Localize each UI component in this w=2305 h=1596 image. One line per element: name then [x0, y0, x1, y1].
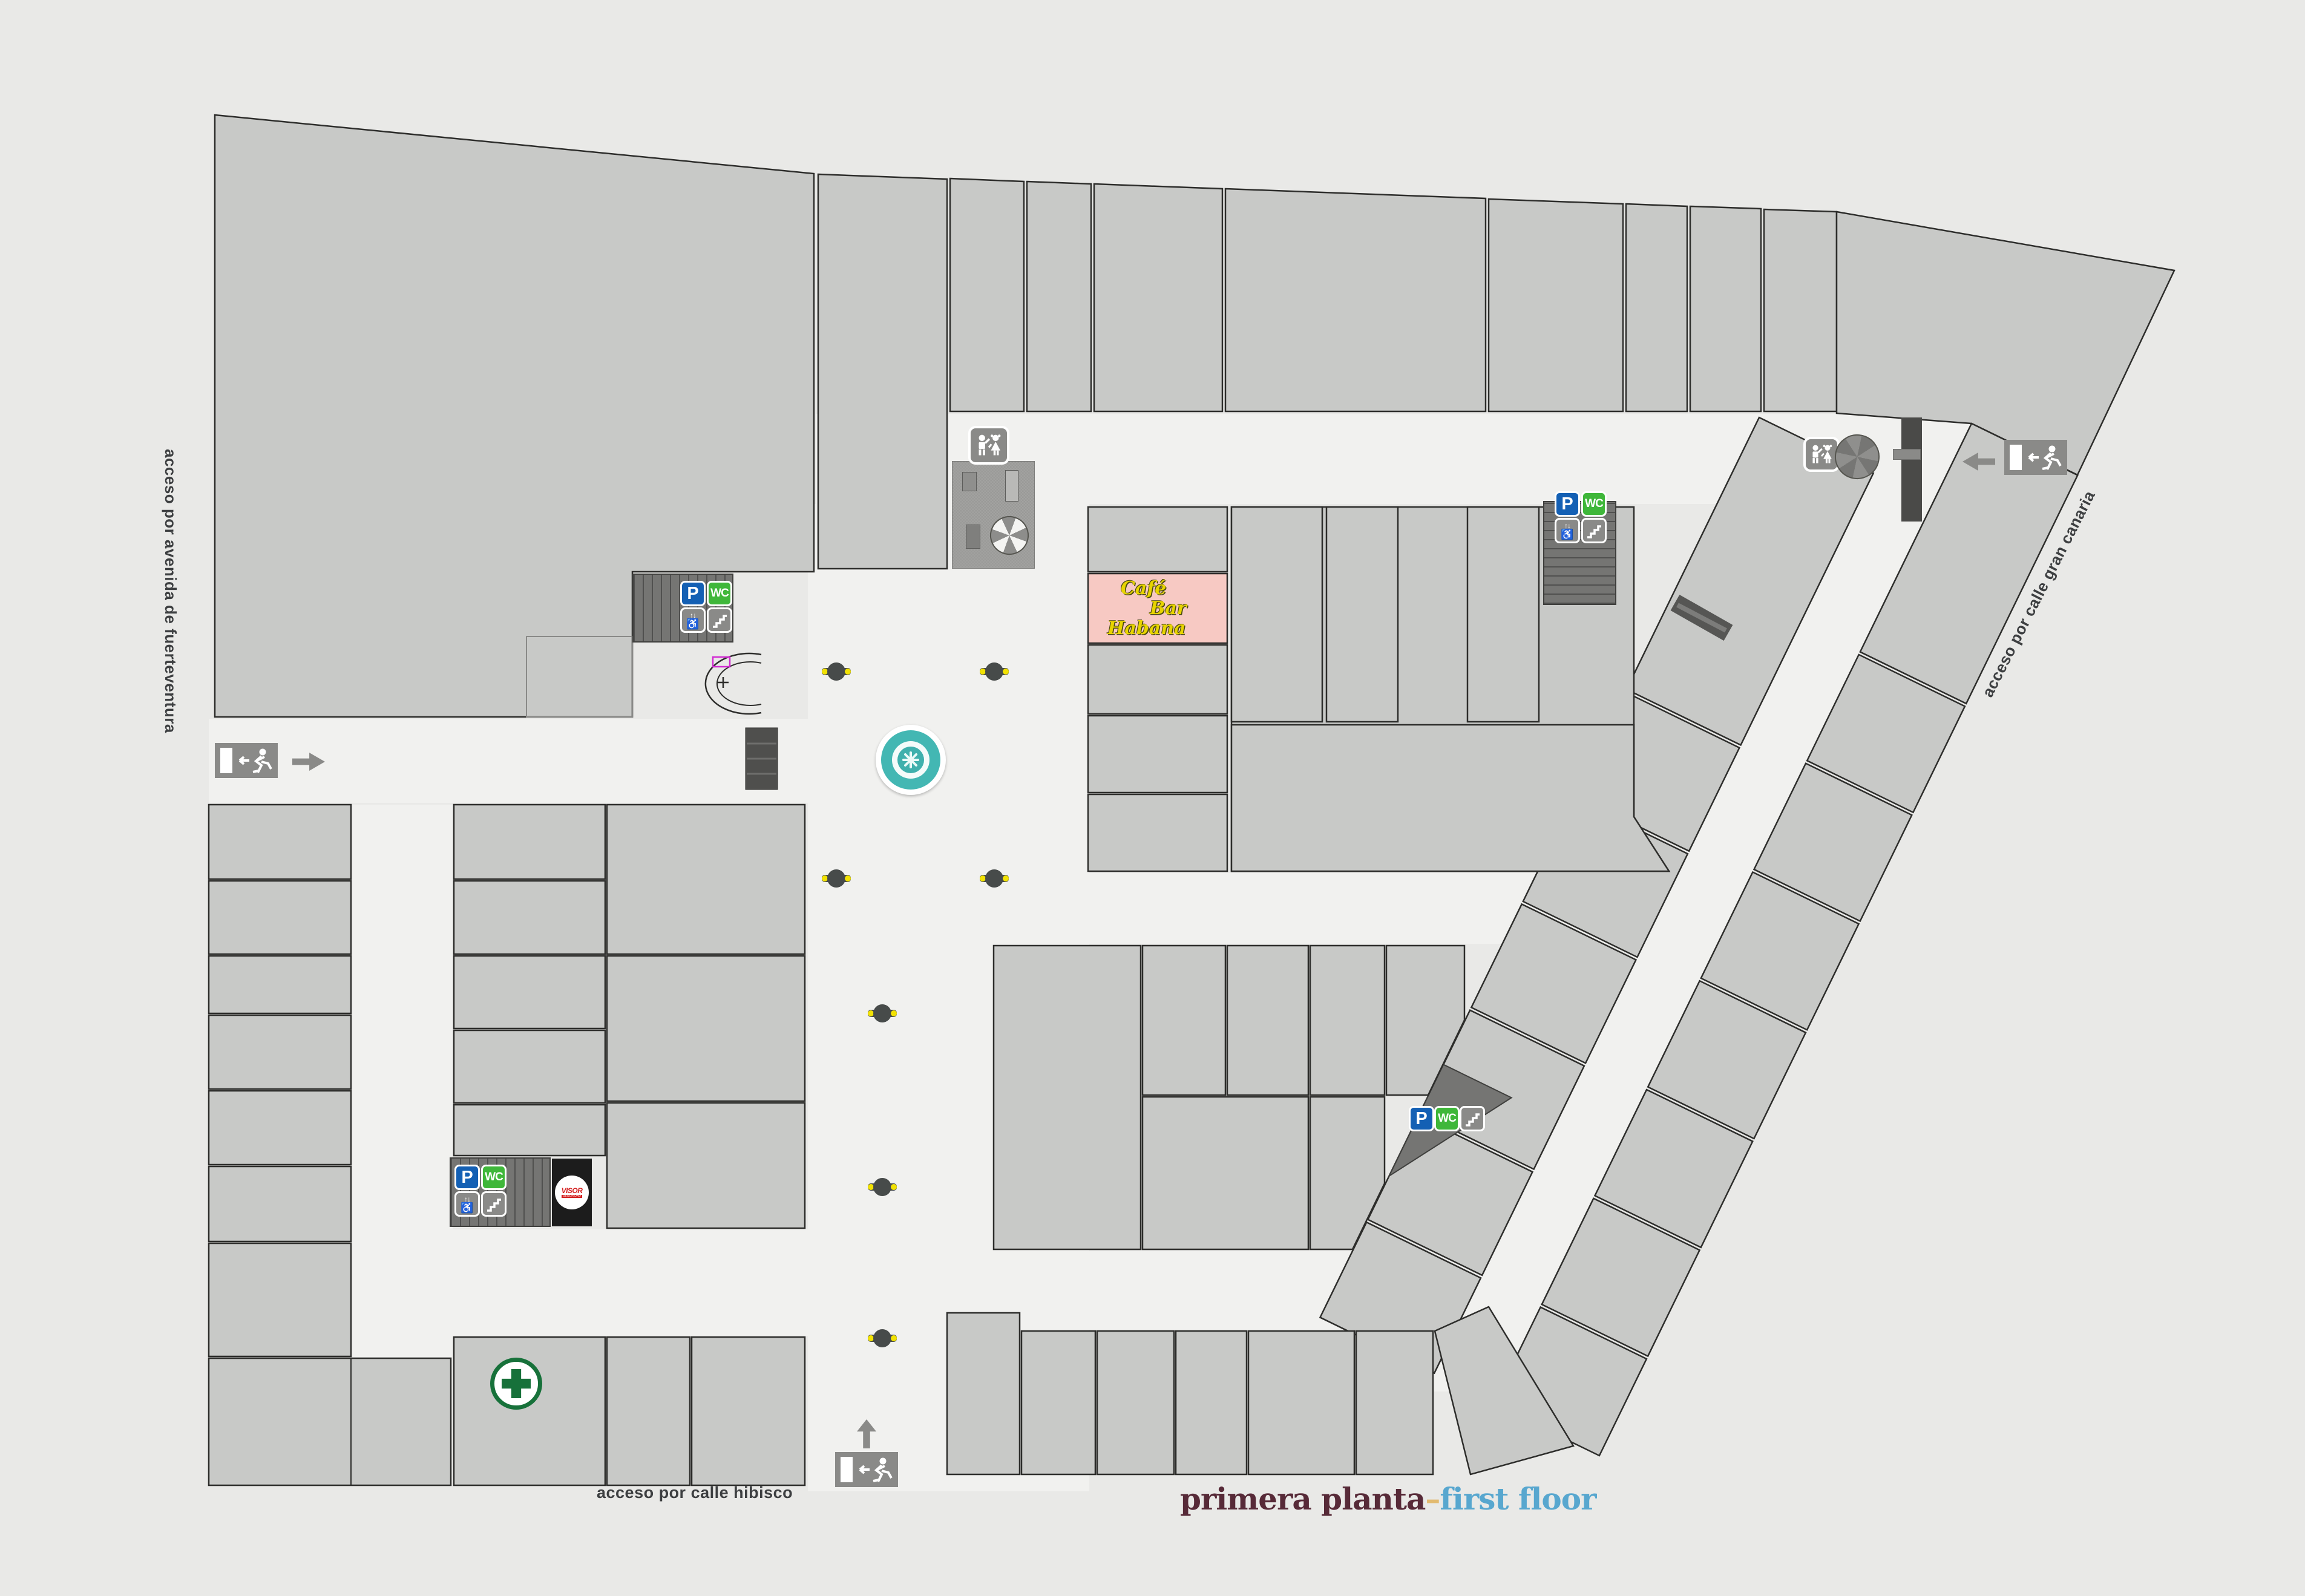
elevator-arrows: ↑↓	[464, 1195, 470, 1203]
exit-icon	[2004, 440, 2067, 475]
shop-unit	[1467, 507, 1539, 722]
vertical-connector	[1901, 417, 1922, 522]
bench	[980, 668, 1009, 675]
play-fixture	[962, 472, 977, 491]
wheelchair-glyph: ♿	[1561, 529, 1573, 540]
green-cross	[502, 1369, 531, 1398]
shop-unit	[209, 881, 351, 954]
exit-runner-icon	[235, 747, 274, 774]
shop-unit	[1143, 946, 1225, 1095]
shop-unit	[950, 178, 1024, 411]
wc-label: WC	[1585, 497, 1603, 511]
shop-unit	[1094, 184, 1222, 411]
shop-unit	[454, 805, 605, 879]
north-shop-strip	[950, 178, 1837, 411]
wc-icon: WC	[707, 581, 732, 606]
stairs-icon	[1581, 518, 1607, 543]
shop-unit	[1088, 794, 1227, 871]
exit-icon	[835, 1452, 898, 1487]
ramp-cross-mark	[718, 677, 729, 688]
kids-area-icon	[1803, 437, 1840, 472]
shop-unit	[607, 1103, 805, 1228]
parking-label: P	[1561, 494, 1573, 514]
bench	[822, 668, 851, 675]
shop-unit	[607, 1337, 690, 1485]
wc-label: WC	[485, 1171, 503, 1184]
wc-icon: WC	[481, 1165, 507, 1190]
play-car-fixture	[966, 525, 980, 549]
visor-logo: VISOR SEGURIDAD	[555, 1176, 589, 1209]
floorplan-svg	[0, 0, 2305, 1596]
shop-unit	[947, 1313, 1020, 1474]
shop-unit	[209, 1358, 451, 1485]
visor-subtitle: SEGURIDAD	[562, 1195, 582, 1198]
fountain-splash	[897, 747, 924, 773]
floor-title: primera planta–first floor	[1180, 1481, 1596, 1517]
wc-label: WC	[1438, 1112, 1456, 1125]
kids-area-icon	[968, 426, 1009, 465]
shop-unit	[1310, 946, 1385, 1095]
cafe-bar-habana-label: Café Bar Habana	[1089, 576, 1226, 641]
shop-unit	[1356, 1331, 1433, 1474]
shop-unit-wide	[1231, 725, 1669, 871]
floor-title-english: first floor	[1440, 1481, 1596, 1517]
elevator-icon: ↑↓♿	[454, 1191, 480, 1217]
shop-unit	[454, 1105, 605, 1156]
shop-unit	[607, 805, 805, 954]
pharmacy-cross-icon	[490, 1358, 542, 1410]
cafe-line: Café	[1121, 578, 1226, 598]
wc-label: WC	[710, 587, 729, 600]
visor-seguridad-unit: VISOR SEGURIDAD	[552, 1159, 592, 1226]
bench	[868, 1183, 897, 1191]
access-label-south: acceso por calle hibisco	[597, 1483, 793, 1502]
shop-unit	[1027, 182, 1091, 411]
shop-unit	[1227, 946, 1308, 1095]
cafe-line: Bar	[1150, 598, 1226, 618]
corridor-southwest	[453, 1229, 808, 1336]
shop-unit	[692, 1337, 805, 1485]
shop-unit	[1088, 716, 1227, 793]
parking-label: P	[461, 1168, 473, 1188]
shop-unit	[1088, 507, 1227, 572]
visor-name: VISOR	[562, 1187, 583, 1194]
elevator-arrows: ↑↓	[1564, 522, 1570, 529]
stairwell-northeast	[1543, 501, 1616, 605]
shop-unit	[1088, 645, 1227, 714]
bench	[1893, 449, 1921, 460]
elevator-icon: ↑↓♿	[1555, 518, 1580, 543]
parking-label: P	[1415, 1109, 1427, 1129]
elevator-arrows: ↑↓	[690, 612, 696, 619]
wheelchair-glyph: ♿	[461, 1203, 473, 1213]
bench	[868, 1010, 897, 1017]
mall-floorplan: P WC ↑↓♿ P WC ↑↓♿ P WC ↑↓♿ P WC	[0, 0, 2305, 1596]
parking-icon: P	[454, 1165, 480, 1190]
shop-unit	[1489, 199, 1623, 411]
shop-unit	[209, 1166, 351, 1241]
exit-door	[220, 748, 232, 773]
shop-unit	[454, 956, 605, 1029]
fountain-core	[897, 747, 924, 773]
stairs-icon	[481, 1191, 507, 1217]
shop-unit	[209, 1243, 351, 1356]
exit-door	[841, 1457, 853, 1482]
shop-unit	[209, 1015, 351, 1089]
shop-unit	[1231, 507, 1322, 722]
exit-door	[2010, 445, 2022, 470]
cafe-line: Habana	[1107, 618, 1226, 638]
shop-unit	[454, 881, 605, 954]
bench	[822, 875, 851, 882]
shop-unit	[818, 174, 947, 569]
shop-unit	[607, 956, 805, 1101]
shop-unit	[209, 805, 351, 879]
shop-unit	[454, 1030, 605, 1103]
floor-title-dash: –	[1425, 1481, 1440, 1517]
wc-icon: WC	[1581, 491, 1607, 517]
elevator-icon: ↑↓♿	[680, 607, 706, 633]
shop-unit	[1326, 507, 1398, 722]
shop-unit	[994, 946, 1141, 1249]
wheelchair-glyph: ♿	[686, 619, 699, 629]
exit-runner-icon	[855, 1456, 894, 1483]
shop-unit	[1626, 204, 1687, 411]
bench	[868, 1335, 897, 1342]
access-label-west: acceso por avenida de fuerteventura	[161, 449, 180, 733]
shop-unit	[1021, 1331, 1095, 1474]
shop-unit-pharmacy	[454, 1337, 605, 1485]
shop-unit	[209, 1091, 351, 1165]
parking-icon: P	[680, 581, 706, 606]
parking-icon: P	[1409, 1106, 1434, 1131]
kids-play-area	[952, 461, 1035, 569]
south-center-shop-row	[947, 1307, 1573, 1474]
parking-label: P	[687, 584, 698, 604]
shop-unit	[1176, 1331, 1247, 1474]
shop-unit	[1764, 209, 1837, 411]
shop-unit	[1097, 1331, 1174, 1474]
stairs-icon	[1460, 1106, 1485, 1131]
statue-fixture	[1005, 470, 1018, 502]
floor-title-spanish: primera planta	[1180, 1481, 1425, 1517]
shop-unit	[1225, 189, 1486, 411]
stairs-icon	[707, 607, 732, 633]
shop-unit	[1143, 1097, 1308, 1249]
fountain	[876, 725, 946, 795]
shop-unit	[1248, 1331, 1354, 1474]
shop-unit	[1690, 206, 1761, 411]
exit-runner-icon	[2024, 444, 2063, 471]
bench	[980, 875, 1009, 882]
exit-icon	[215, 743, 278, 778]
wc-icon: WC	[1434, 1106, 1460, 1131]
parking-icon: P	[1555, 491, 1580, 517]
shop-unit	[209, 956, 351, 1013]
